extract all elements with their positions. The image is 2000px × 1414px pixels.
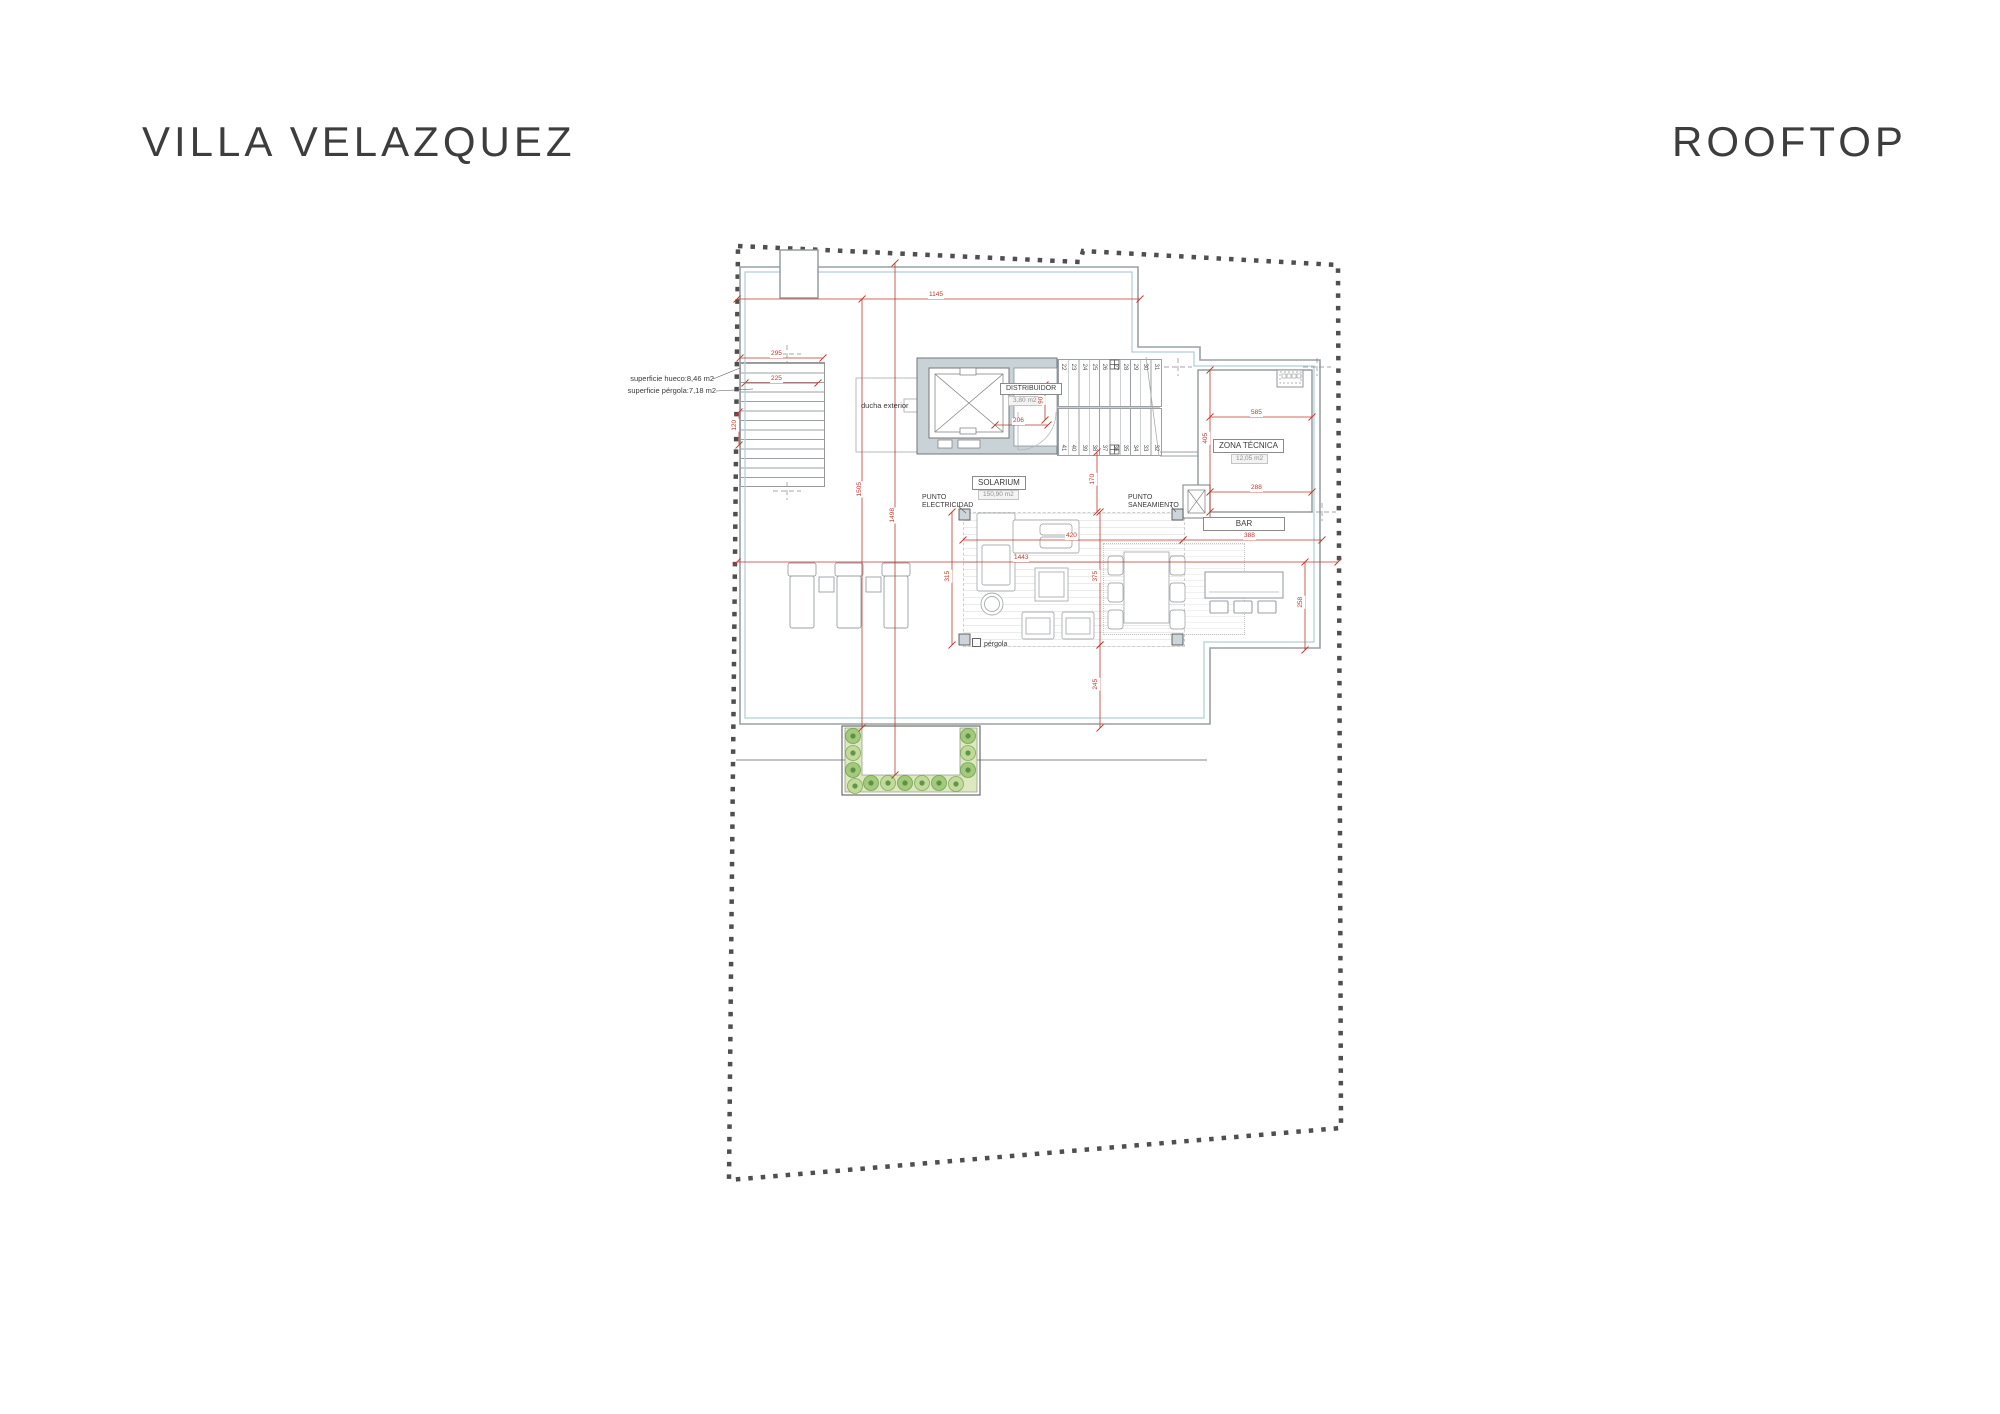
bar-counter xyxy=(1205,572,1283,613)
room-label-bar: BAR xyxy=(1203,517,1285,531)
dim-label: 1505 xyxy=(857,481,864,497)
stair-step-number: 22 xyxy=(1058,362,1068,372)
note-punto-electricidad: PUNTO ELECTRICIDAD xyxy=(922,494,973,510)
note-superficie-hueco: superficie hueco:8,46 m2 xyxy=(628,375,714,384)
stair-numbers-lower: 41403938373635343332 xyxy=(1058,443,1164,455)
floorplan-sheet: VILLA VELAZQUEZ ROOFTOP xyxy=(0,0,2000,1414)
stair-step-number: 29 xyxy=(1130,362,1140,372)
lounge-furniture xyxy=(977,513,1185,639)
stair-step-number: 34 xyxy=(1130,443,1140,453)
planter-plants xyxy=(846,729,976,794)
dining-chair xyxy=(1170,556,1185,575)
dim-label: 405 xyxy=(1203,432,1210,445)
dining-chair xyxy=(1170,583,1185,602)
dim-label: 288 xyxy=(1250,485,1263,492)
planter xyxy=(842,726,980,795)
plan-drawing xyxy=(0,0,2000,1414)
dim-label: 120 xyxy=(732,419,739,432)
dim-label: 420 xyxy=(1065,533,1078,540)
stair-step-number: 30 xyxy=(1140,362,1150,372)
dim-label: 258 xyxy=(1298,596,1305,609)
stair-step-number: 35 xyxy=(1120,443,1130,453)
room-area-zona-tecnica: 12,05 m2 xyxy=(1231,454,1268,464)
dim-label: 585 xyxy=(1250,410,1263,417)
dim-label: 225 xyxy=(770,376,783,383)
note-punto-saneamiento: PUNTO SANEAMIENTO xyxy=(1128,494,1179,510)
stair-step-number: 38 xyxy=(1089,443,1099,453)
dim-label: 206 xyxy=(1012,418,1025,425)
room-area-solarium: 150,90 m2 xyxy=(978,490,1019,500)
sun-loungers xyxy=(788,563,910,628)
stair-step-number: 25 xyxy=(1089,362,1099,372)
stair-numbers-upper: 22232425262728293031 xyxy=(1058,362,1164,374)
pergola-legend-swatch xyxy=(972,638,981,647)
side-table xyxy=(819,577,834,592)
stair-step-number: 37 xyxy=(1099,443,1109,453)
stair-step-number: 32 xyxy=(1151,443,1161,453)
stair-step-number: 33 xyxy=(1140,443,1150,453)
stair-step-number: 24 xyxy=(1079,362,1089,372)
side-table xyxy=(866,577,881,592)
room-label-distribuidor: DISTRIBUIDOR xyxy=(1000,383,1062,395)
stair-step-number: 36 xyxy=(1110,443,1120,453)
dim-label: 295 xyxy=(770,351,783,358)
chimney xyxy=(780,250,818,298)
dim-label: 315 xyxy=(945,570,952,583)
dim-label: 1443 xyxy=(1013,555,1029,562)
dim-label: 245 xyxy=(1093,678,1100,691)
note-superficie-pergola: superficie pérgola:7,18 m2 xyxy=(626,387,716,396)
service-shaft xyxy=(1183,485,1210,518)
stair-step-number: 41 xyxy=(1058,443,1068,453)
dim-label: 1145 xyxy=(928,292,944,299)
note-pergola: pérgola xyxy=(972,638,1007,649)
dim-label: 170 xyxy=(1090,473,1097,486)
dining-chair xyxy=(1108,583,1123,602)
dim-label: 1498 xyxy=(890,507,897,523)
stair-step-number: 39 xyxy=(1079,443,1089,453)
dining-table xyxy=(1124,552,1169,623)
stair-step-number: 28 xyxy=(1120,362,1130,372)
stair-step-number: 27 xyxy=(1110,362,1120,372)
note-ducha-exterior: ducha exterior xyxy=(861,402,909,411)
dining-chair xyxy=(1108,556,1123,575)
bar-stool xyxy=(1210,601,1228,613)
dim-label: 90 xyxy=(1038,396,1045,405)
stair-step-number: 40 xyxy=(1068,443,1078,453)
stair-step-number: 31 xyxy=(1151,362,1161,372)
dim-label: 388 xyxy=(1243,533,1256,540)
dining-chair xyxy=(1108,610,1123,629)
room-label-solarium: SOLARIUM xyxy=(972,476,1026,490)
stair-step-number: 26 xyxy=(1099,362,1109,372)
stair-step-number: 23 xyxy=(1068,362,1078,372)
bar-stool xyxy=(1234,601,1252,613)
bar-stool xyxy=(1258,601,1276,613)
dining-chair xyxy=(1170,610,1185,629)
dim-label: 375 xyxy=(1093,570,1100,583)
room-label-zona-tecnica: ZONA TÉCNICA xyxy=(1213,439,1284,453)
